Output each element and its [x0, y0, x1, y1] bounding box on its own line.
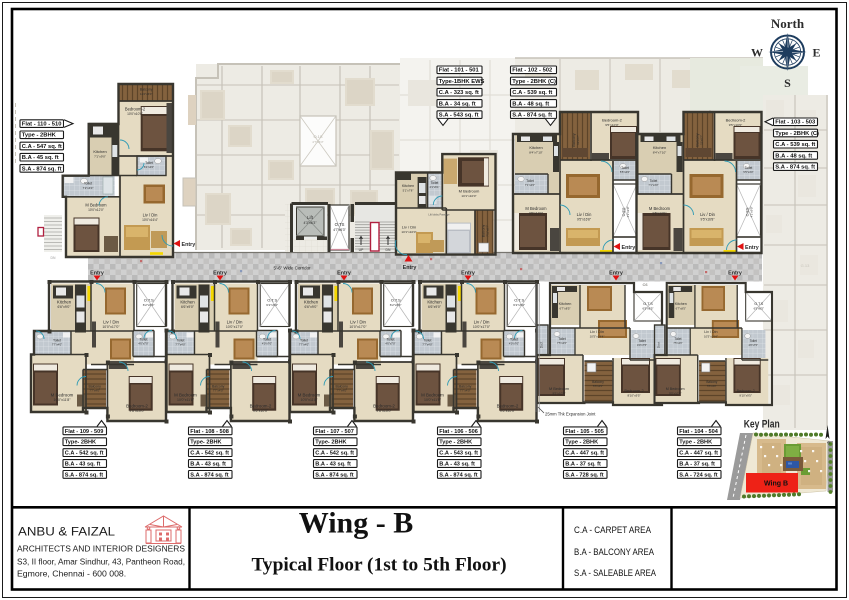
- svg-text:5'5"x4'0": 5'5"x4'0": [707, 385, 716, 388]
- svg-text:6'1"x4'0": 6'1"x4'0": [144, 165, 154, 169]
- svg-text:Flat - 108 - 508: Flat - 108 - 508: [190, 429, 229, 435]
- svg-text:6'7"x8'5": 6'7"x8'5": [559, 306, 570, 310]
- svg-text:Kitchen: Kitchen: [529, 145, 542, 150]
- svg-text:Toilet: Toilet: [53, 339, 61, 343]
- svg-text:9'6"x10'0": 9'6"x10'0": [129, 409, 145, 413]
- svg-text:Toilet: Toilet: [750, 339, 757, 343]
- svg-text:S.A - 543 sq. ft: S.A - 543 sq. ft: [439, 113, 479, 119]
- svg-text:Toilet: Toilet: [177, 339, 185, 343]
- svg-text:Lift lobby Passage: Lift lobby Passage: [428, 212, 450, 216]
- svg-text:S.A - 874 sq. ft: S.A - 874 sq. ft: [775, 165, 815, 171]
- svg-text:10'0"x17'0": 10'0"x17'0": [226, 325, 244, 329]
- svg-text:Type - 2BHK: Type - 2BHK: [22, 133, 57, 139]
- svg-text:4'7"x6'3": 4'7"x6'3": [312, 140, 323, 144]
- svg-text:M Bedroom: M Bedroom: [525, 206, 547, 211]
- svg-text:M Bedroom: M Bedroom: [298, 393, 321, 398]
- svg-text:Toilet: Toilet: [84, 182, 92, 186]
- svg-text:Liv / Din: Liv / Din: [474, 320, 490, 325]
- svg-text:B.A - 48 sq. ft: B.A - 48 sq. ft: [775, 153, 812, 159]
- svg-text:E: E: [812, 46, 820, 60]
- svg-text:Duct: Duct: [657, 342, 661, 349]
- svg-text:9'6"x10'0": 9'6"x10'0": [253, 409, 269, 413]
- svg-text:Toilet: Toilet: [140, 338, 148, 342]
- svg-text:Type- 2BHK: Type- 2BHK: [315, 440, 346, 446]
- svg-text:7'7"x4'0": 7'7"x4'0": [175, 343, 185, 347]
- svg-text:Liv / Din: Liv / Din: [103, 320, 119, 325]
- svg-text:Flat - 109 - 509: Flat - 109 - 509: [65, 429, 104, 435]
- svg-text:O.T.S: O.T.S: [643, 302, 653, 306]
- svg-text:7'5"x4'0": 7'5"x4'0": [557, 341, 567, 345]
- svg-text:5'-6" Wide Corridor: 5'-6" Wide Corridor: [273, 266, 311, 271]
- svg-text:Flat - 110 - 510: Flat - 110 - 510: [22, 122, 62, 128]
- svg-text:8'4"x7'10": 8'4"x7'10": [529, 150, 543, 154]
- svg-text:7'7"x4'0": 7'7"x4'0": [213, 389, 224, 393]
- svg-text:9'6"x10'0": 9'6"x10'0": [500, 409, 516, 413]
- svg-text:Kitchen: Kitchen: [653, 145, 666, 150]
- svg-text:7'7"x4'0": 7'7"x4'0": [52, 343, 62, 347]
- svg-text:Flat - 102 - 502: Flat - 102 - 502: [512, 68, 552, 74]
- svg-text:Toilet: Toilet: [510, 338, 518, 342]
- svg-text:6'2"x6'4": 6'2"x6'4": [266, 303, 278, 307]
- svg-text:Toilet: Toilet: [387, 338, 395, 342]
- svg-text:C.A - CARPET AREA: C.A - CARPET AREA: [574, 525, 651, 535]
- svg-text:6'6"x9'0": 6'6"x9'0": [58, 305, 72, 309]
- svg-text:9'5"x12'0": 9'5"x12'0": [529, 211, 543, 215]
- svg-text:Liv / Din: Liv / Din: [700, 212, 716, 217]
- svg-text:8'10"x9'5": 8'10"x9'5": [740, 393, 752, 397]
- svg-text:Bedroom-2: Bedroom-2: [497, 404, 519, 409]
- svg-text:Flat - 107 - 507: Flat - 107 - 507: [315, 429, 354, 435]
- svg-text:Balcony: Balcony: [592, 380, 604, 384]
- svg-text:O.T.S: O.T.S: [267, 298, 277, 303]
- svg-text:Type- 2BHK: Type- 2BHK: [190, 440, 221, 446]
- svg-text:4'1"x9'0": 4'1"x9'0": [750, 206, 754, 217]
- svg-text:C.A - 542 sq. ft: C.A - 542 sq. ft: [65, 451, 104, 457]
- svg-text:C.A - 547 sq. ft: C.A - 547 sq. ft: [22, 144, 62, 150]
- svg-text:DN: DN: [51, 256, 56, 260]
- svg-text:B.A - 34 sq. ft: B.A - 34 sq. ft: [439, 101, 476, 107]
- svg-text:Wing - B: Wing - B: [299, 507, 413, 540]
- svg-text:M Bedroom: M Bedroom: [85, 203, 107, 208]
- svg-text:10'1"x10'0": 10'1"x10'0": [401, 230, 416, 234]
- svg-text:B.A - 37 sq. ft: B.A - 37 sq. ft: [679, 462, 715, 468]
- svg-text:9'5"x10'0": 9'5"x10'0": [605, 123, 619, 127]
- svg-text:Bedroom-2: Bedroom-2: [125, 107, 146, 112]
- svg-text:Type - 2BHK: Type - 2BHK: [439, 440, 472, 446]
- svg-text:W: W: [751, 46, 763, 60]
- svg-text:9'5"x16'8": 9'5"x16'8": [701, 217, 715, 221]
- svg-text:S.A - 874 sq. ft: S.A - 874 sq. ft: [22, 166, 62, 172]
- svg-text:Flat - 104 - 504: Flat - 104 - 504: [679, 429, 718, 435]
- svg-text:M Bedroom: M Bedroom: [174, 393, 197, 398]
- svg-text:4'3"x6'3": 4'3"x6'3": [304, 221, 318, 225]
- svg-text:UP: UP: [359, 248, 364, 252]
- svg-text:Bedroom-2: Bedroom-2: [602, 118, 623, 123]
- svg-text:Toilet: Toilet: [558, 337, 566, 341]
- svg-text:9'5"x10'5": 9'5"x10'5": [552, 391, 565, 395]
- svg-text:7'5"x4'0": 7'5"x4'0": [673, 342, 682, 345]
- svg-text:Toilet: Toilet: [526, 179, 534, 183]
- svg-text:S.A - 874 sq. ft: S.A - 874 sq. ft: [512, 113, 552, 119]
- svg-text:S3, II floor, Amar Sindhur, 43: S3, II floor, Amar Sindhur, 43, Pantheon…: [17, 557, 185, 567]
- svg-text:7'1"x4'0": 7'1"x4'0": [525, 183, 535, 187]
- svg-text:7'7"x4'0": 7'7"x4'0": [299, 343, 309, 347]
- svg-text:10'0"x11'8": 10'0"x11'8": [424, 398, 442, 402]
- svg-text:Kitchen: Kitchen: [180, 300, 195, 305]
- svg-text:ANBU & FAIZAL: ANBU & FAIZAL: [18, 525, 115, 539]
- svg-text:10'0"x11'8": 10'0"x11'8": [177, 398, 195, 402]
- svg-text:C6: C6: [642, 282, 648, 287]
- svg-text:4'0"x7'5": 4'0"x7'5": [749, 344, 758, 347]
- svg-text:S: S: [784, 76, 791, 90]
- svg-text:4'7"x6'3": 4'7"x6'3": [333, 228, 346, 232]
- svg-text:8'10"x9'5": 8'10"x9'5": [627, 393, 640, 397]
- svg-text:Lift: Lift: [307, 215, 314, 220]
- svg-text:5'1"x7'8": 5'1"x7'8": [403, 188, 414, 192]
- svg-text:S.A - 874 sq. ft: S.A - 874 sq. ft: [65, 472, 103, 478]
- svg-text:6'2"x6'4": 6'2"x6'4": [513, 303, 525, 307]
- svg-text:B.A - 45 sq. ft: B.A - 45 sq. ft: [22, 155, 59, 161]
- svg-text:Entry: Entry: [403, 265, 417, 271]
- svg-text:4'0"x7'0": 4'0"x7'0": [509, 342, 519, 346]
- svg-text:9'5"x10'5": 9'5"x10'5": [669, 391, 681, 395]
- svg-text:Key Plan: Key Plan: [744, 419, 780, 431]
- svg-text:Entry: Entry: [745, 245, 759, 251]
- svg-text:10'5"x14'4": 10'5"x14'4": [704, 334, 718, 338]
- svg-text:6'7"x8'5": 6'7"x8'5": [676, 306, 686, 310]
- svg-text:ARCHITECTS AND INTERIOR DESIGN: ARCHITECTS AND INTERIOR DESIGNERS: [17, 544, 185, 554]
- svg-text:Typical Floor (1st to 5th Flo: Typical Floor (1st to 5th Floor): [251, 555, 506, 576]
- svg-text:Kitchen: Kitchen: [304, 300, 319, 305]
- svg-text:Bedroom-2: Bedroom-2: [726, 118, 747, 123]
- svg-text:Balcony: Balcony: [482, 225, 486, 238]
- svg-text:7'1"x4'0": 7'1"x4'0": [648, 183, 658, 187]
- svg-text:C.A - 539 sq. ft: C.A - 539 sq. ft: [775, 142, 815, 148]
- svg-text:Flat - 105 - 505: Flat - 105 - 505: [565, 429, 604, 435]
- svg-text:9'5"x12'0": 9'5"x12'0": [653, 211, 667, 215]
- svg-text:North: North: [771, 16, 805, 31]
- svg-text:10'0"x17'0": 10'0"x17'0": [473, 325, 491, 329]
- svg-text:Toilet: Toilet: [300, 339, 308, 343]
- svg-text:25mm Thk Expansion Joint: 25mm Thk Expansion Joint: [545, 412, 596, 417]
- svg-text:7'1"x9'0": 7'1"x9'0": [94, 154, 106, 158]
- svg-text:10'0"x16'4": 10'0"x16'4": [142, 218, 158, 222]
- svg-text:C.A - 539 sq. ft: C.A - 539 sq. ft: [512, 90, 552, 96]
- svg-text:10'0"x17'0": 10'0"x17'0": [349, 325, 367, 329]
- svg-text:B.A - 37 sq. ft: B.A - 37 sq. ft: [565, 462, 601, 468]
- svg-text:11'x6'7": 11'x6'7": [576, 135, 580, 145]
- svg-text:6'6"x9'0": 6'6"x9'0": [305, 305, 319, 309]
- svg-text:Flat - 106 - 506: Flat - 106 - 506: [439, 429, 478, 435]
- svg-text:10'0"x11'8": 10'0"x11'8": [301, 398, 319, 402]
- svg-text:M Bedroom: M Bedroom: [459, 189, 480, 194]
- svg-text:M Bedroom: M Bedroom: [421, 393, 444, 398]
- svg-text:Kitchen: Kitchen: [93, 149, 106, 154]
- svg-text:9'5"x16'8": 9'5"x16'8": [577, 217, 591, 221]
- svg-text:S.A - 728 sq. ft: S.A - 728 sq. ft: [565, 472, 603, 478]
- svg-text:Flat - 101 - 501: Flat - 101 - 501: [439, 68, 480, 74]
- svg-text:C.A - 542 sq. ft: C.A - 542 sq. ft: [190, 451, 229, 457]
- svg-text:Duct: Duct: [540, 342, 544, 349]
- svg-text:10'1"x10'0": 10'1"x10'0": [461, 194, 476, 198]
- svg-text:Toilet: Toilet: [745, 166, 753, 170]
- svg-text:5'5"x4'0": 5'5"x4'0": [743, 170, 753, 174]
- svg-text:Type - 2BHK (C): Type - 2BHK (C): [775, 131, 819, 137]
- svg-text:S.A - 874 sq. ft: S.A - 874 sq. ft: [439, 472, 477, 478]
- svg-text:5'5"x4'0": 5'5"x4'0": [593, 384, 603, 388]
- svg-text:10'0"x10'0": 10'0"x10'0": [127, 112, 143, 116]
- svg-text:Balcony: Balcony: [140, 88, 153, 92]
- svg-text:Entry: Entry: [182, 242, 196, 248]
- svg-text:M Bedroom: M Bedroom: [549, 386, 569, 391]
- svg-text:10'0"x11'8": 10'0"x11'8": [54, 398, 72, 402]
- svg-text:S.A - 874 sq. ft: S.A - 874 sq. ft: [190, 472, 228, 478]
- svg-text:Balcony: Balcony: [706, 380, 717, 384]
- svg-text:9'6"x10'0": 9'6"x10'0": [376, 409, 392, 413]
- svg-text:7'7"x4'0": 7'7"x4'0": [460, 389, 471, 393]
- svg-text:7'2"x4'0": 7'2"x4'0": [83, 186, 94, 190]
- svg-text:10'0"x12'0": 10'0"x12'0": [88, 208, 104, 212]
- svg-text:Liv / Din: Liv / Din: [227, 320, 243, 325]
- svg-text:Entry: Entry: [622, 245, 636, 251]
- svg-text:4'1"x6'1": 4'1"x6'1": [430, 185, 440, 189]
- svg-text:M Bedroom: M Bedroom: [649, 206, 671, 211]
- svg-text:Liv / Din: Liv / Din: [402, 225, 416, 230]
- svg-text:Liv / Din: Liv / Din: [577, 212, 593, 217]
- svg-text:Type- 2BHK: Type- 2BHK: [65, 440, 96, 446]
- svg-text:6'5"x6'5": 6'5"x6'5": [754, 306, 764, 310]
- svg-text:Type - 2BHK: Type - 2BHK: [565, 440, 598, 446]
- svg-text:Kitchen: Kitchen: [559, 302, 572, 306]
- svg-text:Type - 2BHK (C): Type - 2BHK (C): [512, 79, 556, 85]
- svg-text:Liv / Din: Liv / Din: [143, 213, 159, 218]
- svg-text:9'5"x10'0": 9'5"x10'0": [729, 123, 743, 127]
- svg-text:4'0"x7'0": 4'0"x7'0": [138, 342, 148, 346]
- svg-text:Toilet: Toilet: [674, 337, 681, 341]
- svg-text:B.A - 48 sq. ft: B.A - 48 sq. ft: [512, 101, 549, 107]
- svg-text:Bedroom-2: Bedroom-2: [126, 404, 148, 409]
- svg-text:4'0"x7'0": 4'0"x7'0": [385, 342, 395, 346]
- svg-text:S.A - 874 sq. ft: S.A - 874 sq. ft: [315, 472, 353, 478]
- svg-text:11'x6'7": 11'x6'7": [700, 135, 704, 145]
- svg-text:B.A - 43 sq. ft: B.A - 43 sq. ft: [439, 462, 475, 468]
- svg-text:8'4"x7'10": 8'4"x7'10": [653, 150, 667, 154]
- svg-text:6'2"x6'4": 6'2"x6'4": [390, 303, 402, 307]
- svg-text:Bedroom-2: Bedroom-2: [250, 404, 272, 409]
- svg-text:C.A - 543 sq. ft: C.A - 543 sq. ft: [439, 451, 478, 457]
- svg-text:Egmore, Chennai - 600 008.: Egmore, Chennai - 600 008.: [17, 569, 126, 579]
- svg-text:B.A - 43 sq. ft: B.A - 43 sq. ft: [65, 462, 101, 468]
- svg-text:B.A - 43 sq. ft: B.A - 43 sq. ft: [315, 462, 351, 468]
- svg-text:DN: DN: [386, 248, 391, 252]
- svg-text:Toilet: Toilet: [424, 339, 432, 343]
- svg-text:O.1S: O.1S: [313, 134, 322, 139]
- svg-text:Type-1BHK EWS: Type-1BHK EWS: [439, 79, 485, 85]
- svg-text:11'2"x6'0": 11'2"x6'0": [140, 92, 152, 96]
- svg-text:7'7"x4'0": 7'7"x4'0": [422, 343, 432, 347]
- svg-text:Liv / Din: Liv / Din: [350, 320, 366, 325]
- svg-text:C.A - 323 sq. ft: C.A - 323 sq. ft: [439, 90, 479, 96]
- svg-text:Kitchen: Kitchen: [57, 300, 72, 305]
- svg-text:S.A - SALEABLE AREA: S.A - SALEABLE AREA: [574, 568, 656, 578]
- svg-text:Bedroom-2: Bedroom-2: [373, 404, 395, 409]
- svg-text:6'6"x9'0": 6'6"x9'0": [181, 305, 195, 309]
- svg-text:G.13: G.13: [801, 263, 810, 268]
- svg-text:C.A - 447 sq. ft: C.A - 447 sq. ft: [565, 451, 604, 457]
- svg-text:Toilet: Toilet: [145, 161, 153, 165]
- svg-text:M Bedroom: M Bedroom: [51, 393, 74, 398]
- svg-text:S.A - 724 sq. ft: S.A - 724 sq. ft: [679, 472, 717, 478]
- svg-text:7'11"x6'7": 7'11"x6'7": [486, 225, 490, 237]
- svg-text:7'7"x4'0": 7'7"x4'0": [336, 389, 347, 393]
- svg-text:Type - 2BHK: Type - 2BHK: [679, 440, 712, 446]
- svg-text:6'2"x6'4": 6'2"x6'4": [143, 303, 155, 307]
- svg-text:O.T.S: O.T.S: [391, 298, 401, 303]
- svg-text:4'0"x7'5": 4'0"x7'5": [637, 343, 647, 347]
- svg-text:Toilet: Toilet: [621, 166, 629, 170]
- svg-text:6'6"x9'0": 6'6"x9'0": [428, 305, 442, 309]
- svg-text:Toilet: Toilet: [431, 181, 439, 185]
- svg-text:10'0"x17'0": 10'0"x17'0": [102, 325, 120, 329]
- svg-text:Bedroom-2: Bedroom-2: [624, 388, 643, 393]
- svg-text:4'0"x7'0": 4'0"x7'0": [262, 342, 272, 346]
- svg-text:Wing B: Wing B: [764, 481, 788, 488]
- svg-text:C.A - 447 sq. ft: C.A - 447 sq. ft: [679, 451, 718, 457]
- svg-text:O.T.S: O.T.S: [144, 298, 154, 303]
- svg-text:5'5"x4'0": 5'5"x4'0": [620, 170, 630, 174]
- svg-text:6'5"x6'5": 6'5"x6'5": [642, 306, 653, 310]
- svg-text:7'7"x4'0": 7'7"x4'0": [89, 389, 100, 393]
- svg-text:Flat - 103 - 503: Flat - 103 - 503: [775, 120, 816, 126]
- svg-text:O.TS: O.TS: [335, 222, 345, 227]
- svg-text:Kitchen: Kitchen: [427, 300, 442, 305]
- svg-text:Toilet: Toilet: [638, 339, 646, 343]
- svg-text:4'1"x9'0": 4'1"x9'0": [626, 206, 630, 217]
- svg-text:Liv / Din: Liv / Din: [590, 329, 604, 334]
- svg-text:Toilet: Toilet: [650, 179, 658, 183]
- svg-text:Toilet: Toilet: [263, 338, 271, 342]
- svg-text:B.A - 43 sq. ft: B.A - 43 sq. ft: [190, 462, 226, 468]
- svg-text:C.A - 542 sq. ft: C.A - 542 sq. ft: [315, 451, 354, 457]
- svg-text:O.T.S: O.T.S: [514, 298, 524, 303]
- svg-text:B.A - BALCONY AREA: B.A - BALCONY AREA: [574, 547, 654, 557]
- svg-text:10'5"x14'4": 10'5"x14'4": [590, 334, 605, 338]
